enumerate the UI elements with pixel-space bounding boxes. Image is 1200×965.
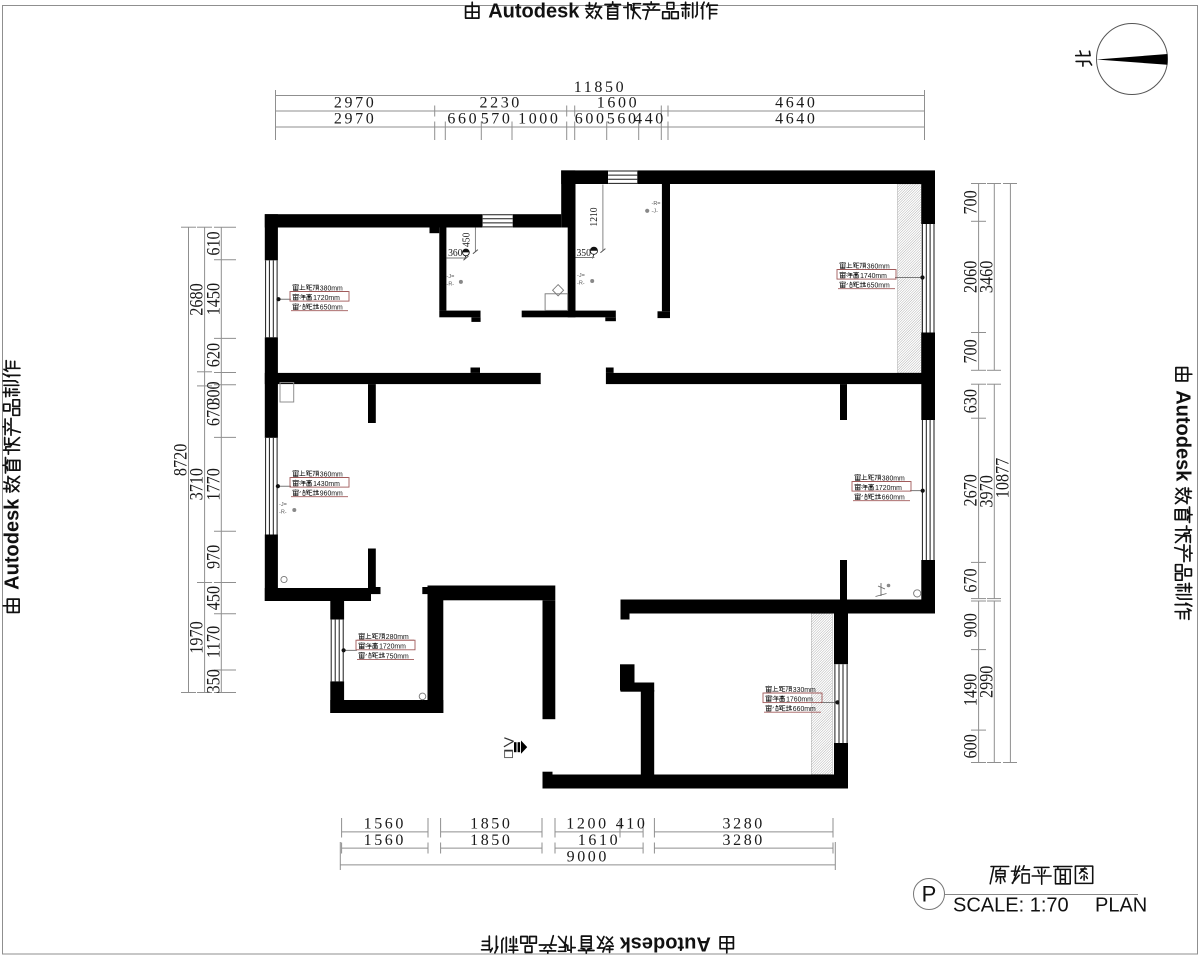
svg-text:620: 620 [203,343,224,367]
svg-text:2970: 2970 [334,95,376,112]
svg-text:-J=: -J= [577,273,585,279]
svg-text:1210: 1210 [589,207,600,226]
svg-text:1850: 1850 [470,816,512,833]
svg-text:610: 610 [203,231,224,255]
svg-text:1610: 1610 [578,832,620,849]
svg-text:Autodesk: Autodesk [1172,390,1194,482]
svg-text:1850: 1850 [470,832,512,849]
svg-text:-J=: -J= [447,274,455,280]
svg-text:8720: 8720 [171,444,192,476]
svg-text:410: 410 [616,816,648,833]
svg-text:9000: 9000 [567,849,609,866]
svg-text:11850: 11850 [574,79,626,96]
svg-text:2680: 2680 [187,283,208,315]
svg-text:-R-: -R- [447,281,455,287]
svg-text:Autodesk: Autodesk [619,933,711,955]
svg-text:350: 350 [203,669,224,693]
svg-text:900: 900 [961,613,982,637]
svg-text:SCALE: 1:70: SCALE: 1:70 [953,895,1069,917]
svg-text:630: 630 [961,389,982,413]
svg-text:600: 600 [575,111,607,128]
svg-text:-R=: -R= [652,201,661,207]
svg-text:440: 440 [634,111,666,128]
svg-text:1970: 1970 [187,621,208,653]
svg-text:P: P [922,882,937,907]
svg-text:4640: 4640 [775,95,817,112]
svg-text:600: 600 [961,734,982,758]
svg-text:700: 700 [961,190,982,214]
svg-text:PLAN: PLAN [1095,895,1147,917]
svg-text:1560: 1560 [364,832,406,849]
svg-text:Autodesk: Autodesk [1,498,23,590]
svg-text:-R-: -R- [577,280,585,286]
svg-text:3280: 3280 [722,832,764,849]
svg-text:10877: 10877 [992,458,1013,499]
svg-text:700: 700 [961,339,982,363]
svg-text:-J=: -J= [279,502,287,508]
svg-text:570: 570 [481,111,513,128]
svg-text:2230: 2230 [479,95,521,112]
svg-text:970: 970 [203,545,224,569]
svg-text:660: 660 [447,111,479,128]
svg-text:2990: 2990 [976,666,997,698]
svg-text:3460: 3460 [976,261,997,293]
svg-text:2970: 2970 [334,111,376,128]
svg-text:1560: 1560 [364,816,406,833]
svg-text:450: 450 [462,233,473,247]
svg-text:-J-: -J- [652,208,659,214]
svg-text:450: 450 [203,586,224,610]
svg-text:1000: 1000 [518,111,560,128]
svg-text:3280: 3280 [722,816,764,833]
svg-text:4640: 4640 [775,111,817,128]
svg-text:Autodesk: Autodesk [488,0,580,22]
svg-text:1200: 1200 [566,816,608,833]
svg-text:670: 670 [203,402,224,426]
svg-text:-R-: -R- [279,509,287,515]
svg-text:670: 670 [961,568,982,592]
svg-text:1600: 1600 [597,95,639,112]
